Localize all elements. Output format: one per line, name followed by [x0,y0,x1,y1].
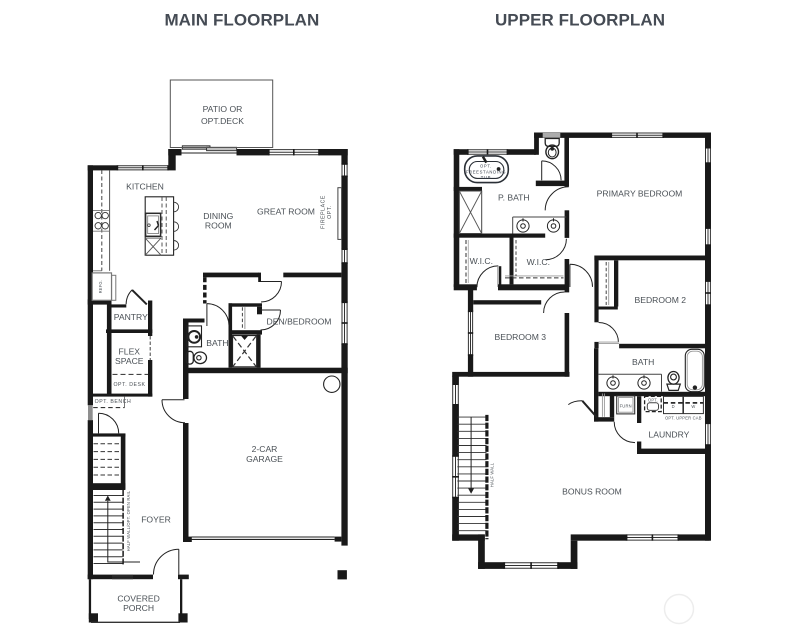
svg-text:BEDROOM 2: BEDROOM 2 [635,295,687,305]
svg-text:PANTRY: PANTRY [114,312,148,322]
svg-text:OPT.: OPT. [327,205,333,219]
svg-text:OPT. UPPER CAB: OPT. UPPER CAB [665,416,702,421]
svg-text:KITCHEN: KITCHEN [126,181,164,191]
svg-text:DINING: DINING [203,211,233,221]
svg-text:GREAT ROOM: GREAT ROOM [257,207,315,217]
svg-text:FOYER: FOYER [141,514,171,524]
svg-text:FLEX: FLEX [119,347,141,357]
svg-text:OPT.: OPT. [648,397,658,402]
svg-text:HALF WALL: HALF WALL [490,462,495,487]
svg-text:DEN/BEDROOM: DEN/BEDROOM [267,317,332,327]
svg-text:D: D [672,404,675,409]
svg-text:OPT.: OPT. [480,163,492,168]
svg-text:FIREPLACE: FIREPLACE [320,195,326,229]
svg-text:REFG.: REFG. [98,280,103,294]
svg-text:MAIN FLOORPLAN: MAIN FLOORPLAN [164,10,319,29]
svg-text:OPT.DECK: OPT.DECK [201,116,244,126]
svg-text:BATH: BATH [206,338,228,348]
svg-text:SPACE: SPACE [115,356,144,366]
svg-text:2-CAR: 2-CAR [252,444,278,454]
svg-text:FURN: FURN [620,403,632,408]
svg-text:OPT. DESK: OPT. DESK [113,382,145,388]
svg-text:OPT. BENCH: OPT. BENCH [95,399,132,405]
svg-text:W.I.C.: W.I.C. [470,256,493,266]
svg-text:BATH: BATH [632,357,654,367]
svg-text:HALF WALL/OPT. OPEN RAIL: HALF WALL/OPT. OPEN RAIL [126,490,131,551]
svg-text:COVERED: COVERED [117,594,160,604]
svg-text:BONUS ROOM: BONUS ROOM [562,487,622,497]
svg-text:PATIO OR: PATIO OR [203,104,243,114]
svg-text:LAUNDRY: LAUNDRY [648,429,689,439]
svg-text:PRIMARY BEDROOM: PRIMARY BEDROOM [597,189,683,199]
svg-text:TUB: TUB [481,175,491,180]
svg-text:W.I.C.: W.I.C. [527,257,550,267]
svg-text:ROOM: ROOM [205,220,232,230]
svg-text:BEDROOM 3: BEDROOM 3 [495,332,547,342]
svg-text:UPPER FLOORPLAN: UPPER FLOORPLAN [495,10,665,29]
svg-text:W: W [691,404,695,409]
svg-text:P. BATH: P. BATH [498,193,530,203]
svg-text:PORCH: PORCH [123,603,154,613]
svg-text:FREESTANDING: FREESTANDING [466,169,506,174]
svg-text:GARAGE: GARAGE [246,454,283,464]
